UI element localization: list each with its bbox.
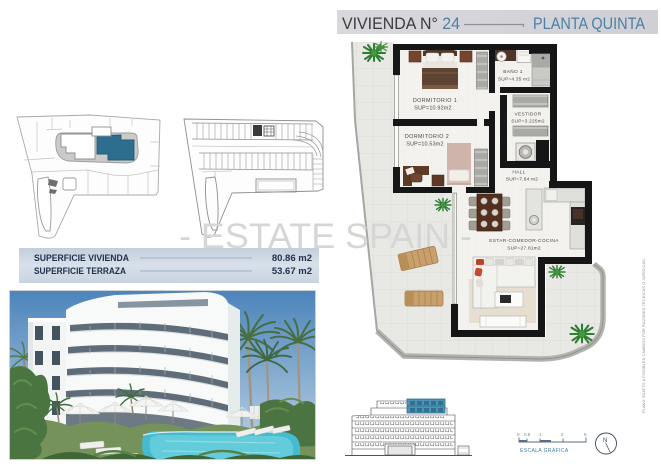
svg-text:VIVIENDA N° 24: VIVIENDA N° 24 (342, 14, 460, 33)
svg-text:PLANTA QUINTA: PLANTA QUINTA (533, 14, 646, 33)
svg-text:SUP=10.53m2: SUP=10.53m2 (406, 142, 443, 148)
svg-text:SUP=27.81m2: SUP=27.81m2 (507, 246, 541, 252)
svg-text:SUP=3.225m2: SUP=3.225m2 (511, 119, 545, 125)
svg-text:SUPERFICIE VIVIENDA: SUPERFICIE VIVIENDA (34, 253, 129, 264)
svg-text:SUP=4.35 m2: SUP=4.35 m2 (498, 77, 530, 83)
svg-text:53.67 m2: 53.67 m2 (272, 266, 312, 277)
svg-text:SUP=10.92m2: SUP=10.92m2 (414, 106, 451, 112)
svg-text:80.86 m2: 80.86 m2 (272, 253, 312, 264)
svg-text:PLANO SUJETO A POSIBLES CAMBIO: PLANO SUJETO A POSIBLES CAMBIOS POR RAZO… (641, 258, 646, 413)
svg-text:N: N (603, 438, 607, 444)
svg-text:ESTAR-COMEDOR-COCINA: ESTAR-COMEDOR-COCINA (489, 238, 559, 244)
svg-text:0.5: 0.5 (524, 432, 531, 437)
svg-text:VESTIDOR: VESTIDOR (515, 112, 542, 118)
svg-text:DORMITORIO 1: DORMITORIO 1 (413, 98, 457, 104)
svg-text:BAÑO 1: BAÑO 1 (503, 68, 522, 75)
svg-text:HALL: HALL (512, 170, 525, 176)
svg-text:ESCALA GRÁFICA: ESCALA GRÁFICA (520, 447, 569, 454)
svg-text:SUPERFICIE TERRAZA: SUPERFICIE TERRAZA (34, 266, 126, 277)
svg-text:DORMITORIO 2: DORMITORIO 2 (405, 134, 449, 140)
svg-text:SUP=7.64 m2: SUP=7.64 m2 (506, 177, 538, 183)
